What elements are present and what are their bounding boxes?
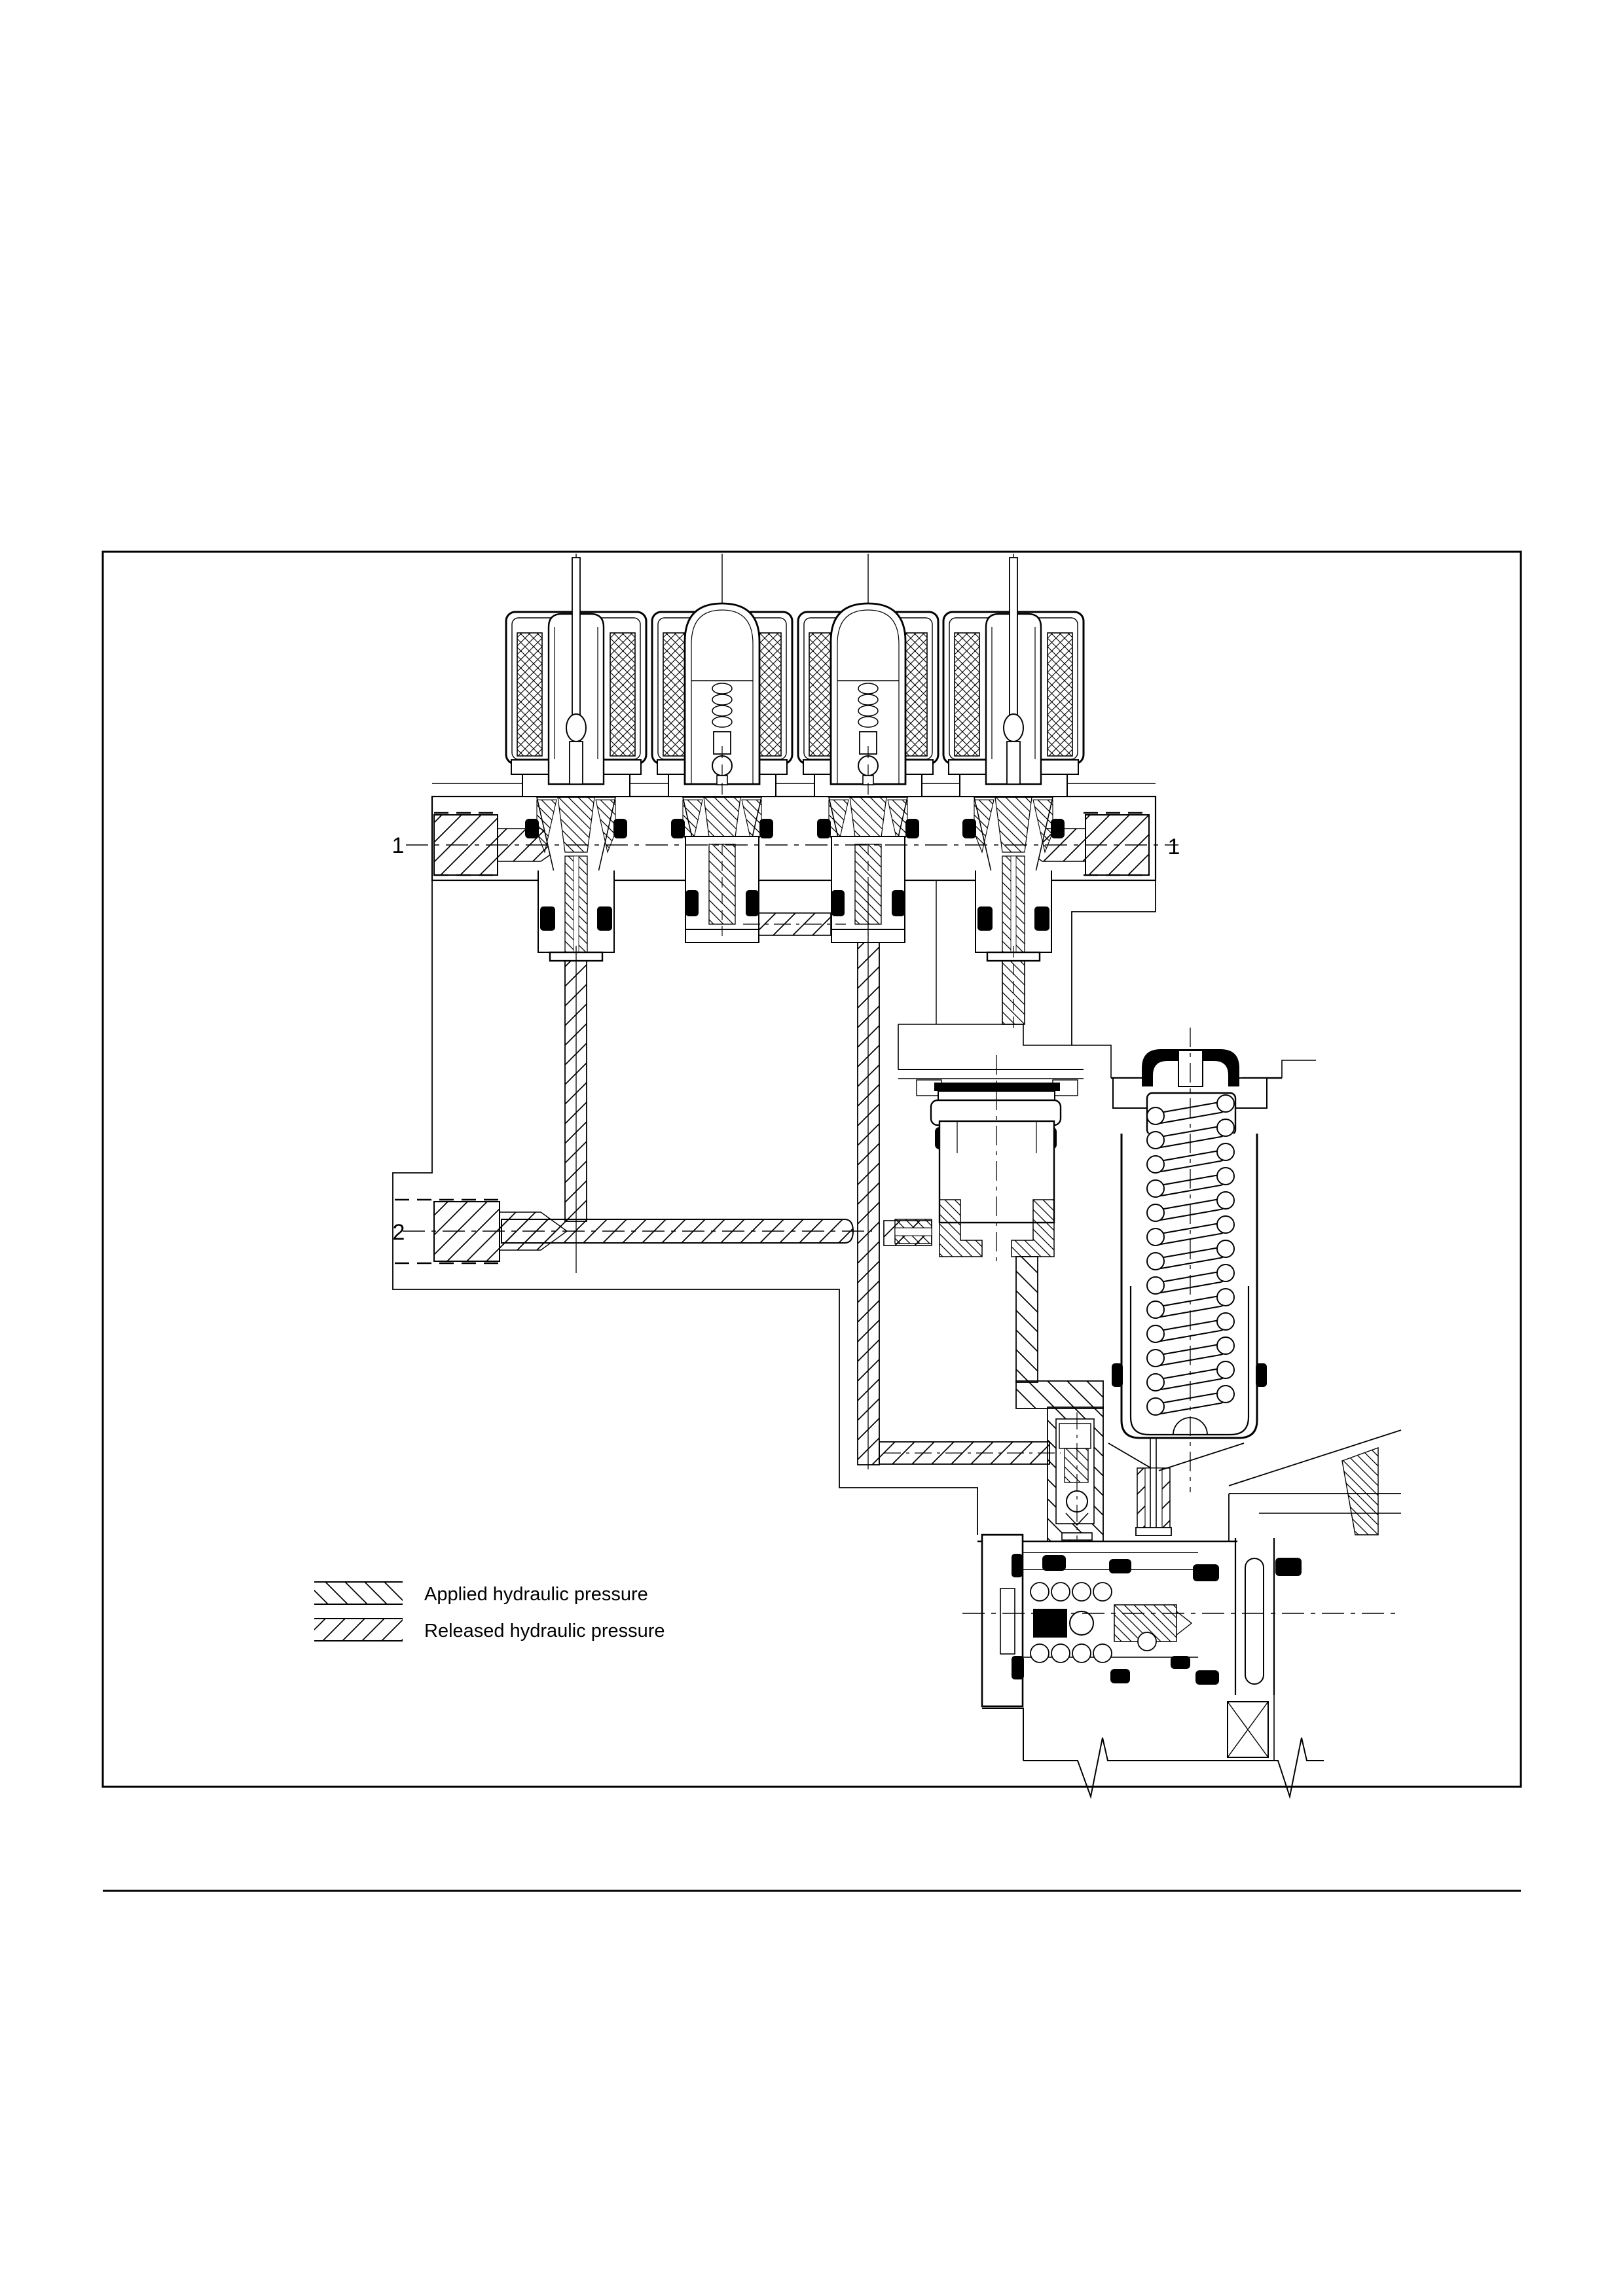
bearing-cross-box bbox=[1228, 1702, 1268, 1757]
relief-valve bbox=[1056, 1412, 1094, 1540]
valve-ball bbox=[1070, 1611, 1093, 1635]
pin-washer bbox=[1136, 1528, 1171, 1535]
callout-port-2: 2 bbox=[393, 1220, 405, 1245]
regulator-spring-assembly bbox=[1108, 1028, 1282, 1492]
legend-applied-label: Applied hydraulic pressure bbox=[424, 1584, 648, 1605]
retainer-slot bbox=[1245, 1558, 1264, 1684]
legend-applied-swatch bbox=[314, 1582, 403, 1604]
pressure-control-diagram: 1 1 2 Applied hydraulic pressure Release… bbox=[0, 0, 1623, 2296]
legend-released-label: Released hydraulic pressure bbox=[424, 1621, 665, 1641]
scanned-page: 1 1 2 Applied hydraulic pressure Release… bbox=[0, 0, 1623, 2296]
legend-released-swatch bbox=[314, 1619, 403, 1641]
accumulator-gasket bbox=[934, 1083, 1060, 1091]
callout-port-1-left: 1 bbox=[392, 833, 405, 858]
channel-applied-column bbox=[1016, 1257, 1038, 1382]
callout-port-1-right: 1 bbox=[1168, 834, 1180, 859]
